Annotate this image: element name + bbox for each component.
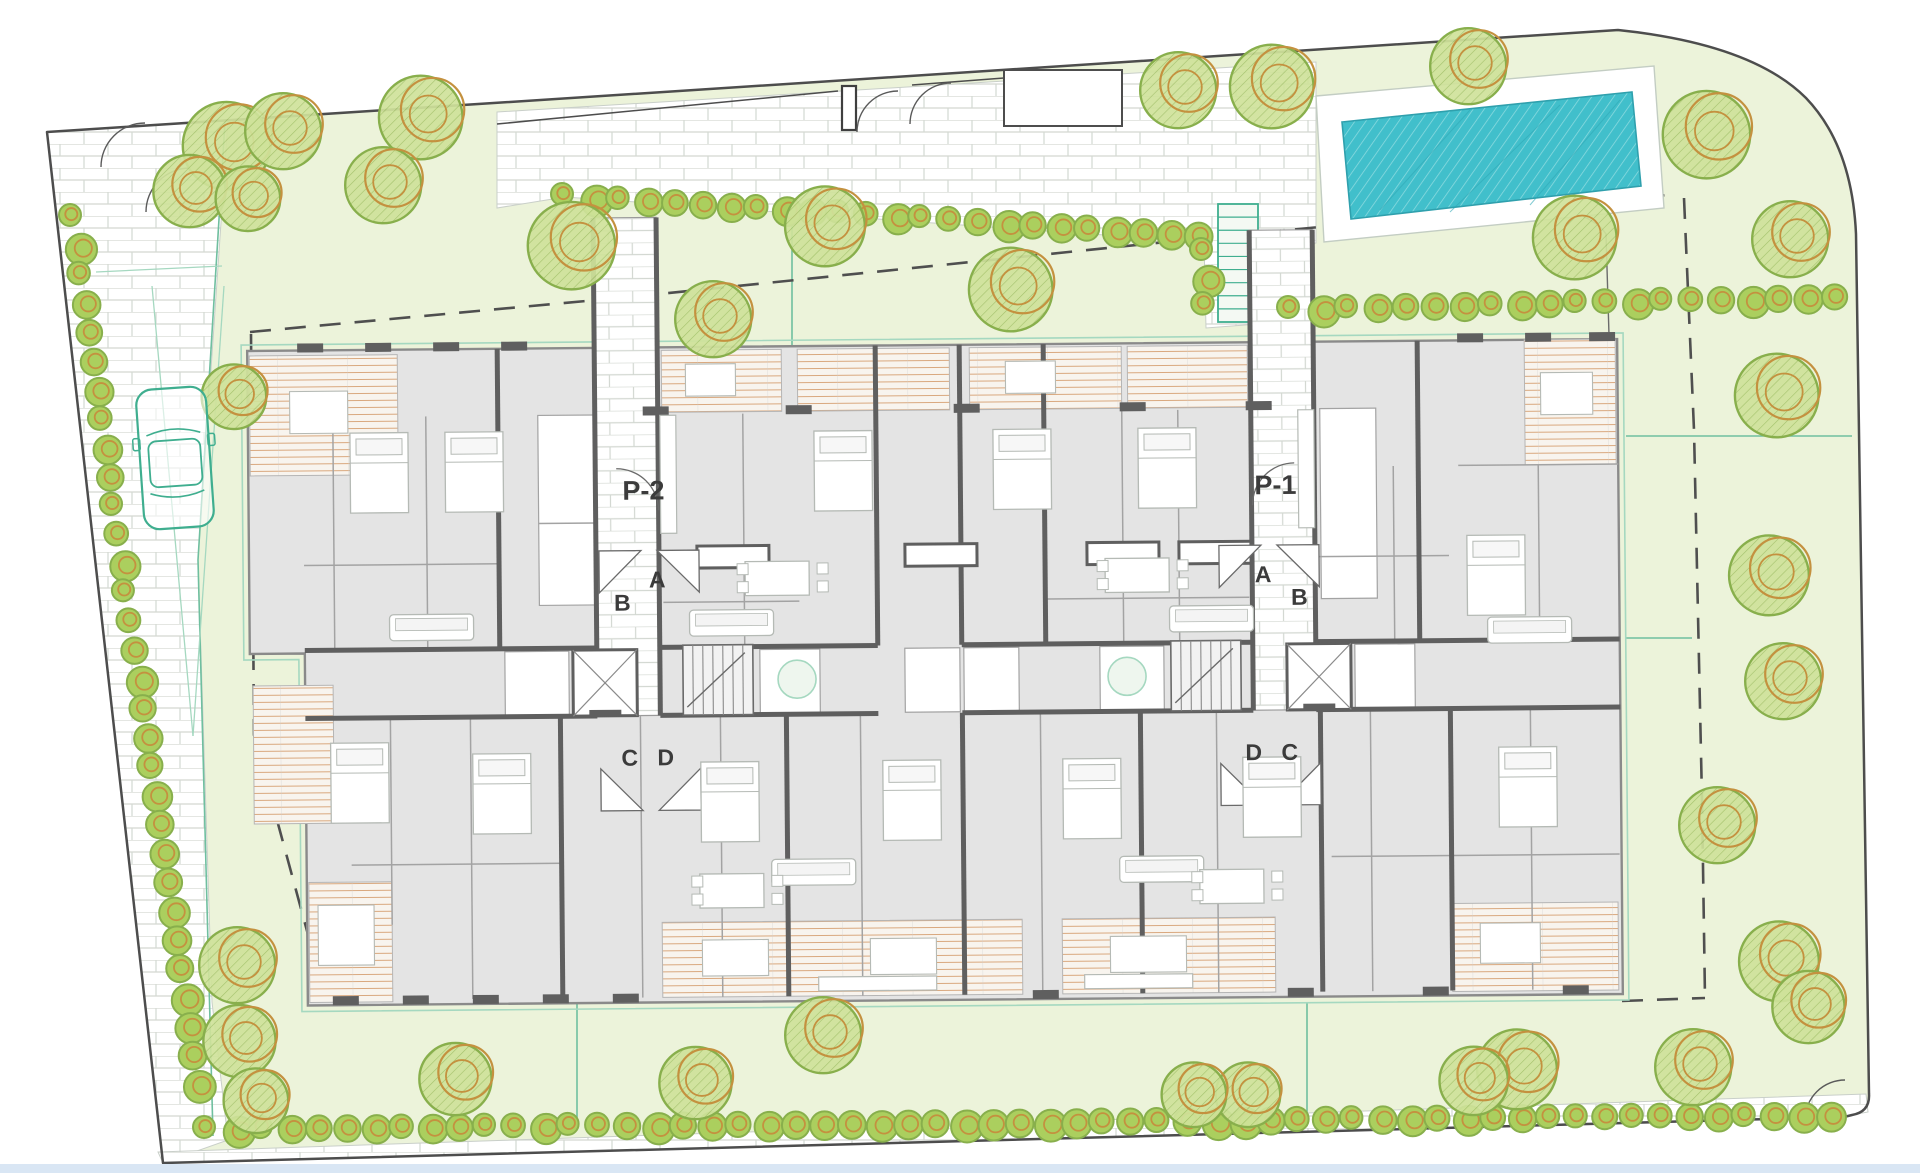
wall-pier (1423, 987, 1449, 996)
hedge-bush-icon (810, 1111, 839, 1140)
hedge-bush-icon (419, 1115, 448, 1144)
hedge-bush-icon (1705, 1104, 1733, 1132)
bed-line (1467, 565, 1525, 566)
tree-icon (1162, 1062, 1228, 1127)
tree-icon (1735, 354, 1820, 438)
wall-pier (613, 994, 639, 1003)
outdoor-furniture (685, 364, 735, 396)
tree-icon (1663, 91, 1752, 178)
tree-canopy (1663, 91, 1750, 178)
bed-line (445, 462, 503, 463)
tree-canopy (199, 927, 275, 1003)
tree-canopy (203, 1005, 275, 1077)
wall-pier (333, 996, 359, 1005)
tree-icon (1533, 196, 1618, 280)
outdoor-furniture (1005, 361, 1055, 393)
wall-pier (1525, 333, 1551, 342)
tree-icon (224, 1068, 290, 1133)
hedge-bush-icon (1365, 295, 1393, 323)
sofa-seat (1175, 609, 1247, 622)
hedge-bush-icon (1478, 292, 1502, 316)
wall-pier (1120, 402, 1146, 411)
tree-canopy (1430, 28, 1506, 104)
tree-icon (1439, 1047, 1509, 1115)
hedge-bush-icon (127, 667, 158, 698)
hedge-bush-icon (1398, 1106, 1428, 1136)
hedge-bush-icon (744, 195, 768, 219)
bathroom-room (538, 415, 596, 605)
chair (1272, 871, 1283, 882)
chair (1097, 560, 1108, 571)
tree-icon (659, 1047, 733, 1119)
label-c-left: C (621, 745, 638, 771)
car-icon (129, 385, 221, 530)
bed-pillow (1249, 763, 1295, 779)
hedge-bush-icon (159, 898, 190, 929)
hedge-bush-icon (1103, 218, 1133, 248)
hedge-bush-icon (446, 1114, 473, 1141)
hedge-bush-icon (1424, 1106, 1449, 1131)
annotation-layer (0, 1164, 1920, 1173)
hedge-bush-icon (166, 955, 193, 982)
hedge-bush-icon (134, 724, 162, 752)
round-fixture (778, 660, 816, 698)
tree-canopy (1745, 643, 1821, 719)
hedge-bush-icon (100, 493, 122, 515)
tree-icon (203, 1005, 277, 1077)
hedge-bush-icon (1158, 221, 1187, 250)
hedge-bush-icon (1708, 287, 1734, 313)
chair (692, 876, 703, 887)
bed-pillow (889, 766, 935, 782)
bed (1243, 757, 1302, 838)
hedge-bush-icon (1006, 1110, 1034, 1138)
kitchen-counter (660, 415, 677, 533)
kitchen-counter (1298, 410, 1315, 528)
outdoor-furniture (318, 905, 375, 965)
wall-pier (1246, 401, 1272, 410)
hedge-bush-icon (193, 1116, 215, 1138)
hedge-bush-icon (143, 782, 173, 812)
outdoor-furniture (1480, 923, 1540, 964)
bed-line (1243, 787, 1301, 788)
table-top (1200, 869, 1264, 904)
chair (817, 563, 828, 574)
bed (331, 743, 390, 824)
label-b-left: B (614, 590, 631, 616)
bathroom-room (1320, 408, 1378, 598)
wall-pier (643, 406, 669, 415)
chair (1192, 872, 1203, 883)
bed-line (1063, 788, 1121, 789)
hedge-bush-icon (150, 840, 179, 869)
tree-canopy (1140, 52, 1216, 128)
bed (473, 754, 532, 835)
hedge-bush-icon (1191, 292, 1214, 315)
hedge-bush-icon (867, 1111, 898, 1142)
sofa-seat (778, 863, 850, 876)
bathroom-room (964, 647, 1020, 711)
hedge-bush-icon (501, 1114, 525, 1138)
stair-tread (723, 645, 724, 715)
tree-icon (969, 248, 1054, 332)
tree-canopy (1735, 354, 1819, 438)
stair-core (1171, 640, 1242, 711)
tree-icon (1430, 28, 1508, 104)
wall-pier (365, 343, 391, 352)
label-d-right: D (1245, 739, 1262, 765)
bed-line (1138, 458, 1196, 459)
label-c-right: C (1281, 739, 1298, 765)
window-closet-block (905, 544, 977, 567)
hedge-bush-icon (104, 522, 128, 546)
hedge-bush-icon (1536, 291, 1563, 318)
hedge-bush-icon (184, 1071, 216, 1103)
hedge-bush-icon (1130, 219, 1158, 247)
hedge-bush-icon (1731, 1103, 1754, 1126)
hedge-bush-icon (1794, 285, 1822, 313)
bed (350, 433, 409, 514)
hedge-bush-icon (1563, 290, 1585, 312)
kitchen-counter (1085, 974, 1193, 989)
hedge-bush-icon (121, 637, 147, 663)
hedge-bush-icon (936, 207, 960, 231)
hedge-bush-icon (306, 1115, 332, 1141)
sofa (689, 609, 773, 636)
hedge-bush-icon (363, 1115, 391, 1143)
round-fixture (1108, 657, 1146, 695)
bed-line (701, 792, 759, 793)
tree-icon (1772, 971, 1846, 1043)
car-layer (129, 385, 221, 530)
wall-pier (1288, 988, 1314, 997)
stair-tread (693, 645, 694, 715)
hedge-bush-icon (66, 234, 97, 265)
hedge-bush-icon (838, 1111, 866, 1139)
tree-canopy (1439, 1047, 1507, 1115)
tree-canopy (345, 147, 421, 223)
bed-line (993, 459, 1051, 460)
chair (692, 894, 703, 905)
bed-pillow (999, 435, 1045, 451)
tree-canopy (1533, 196, 1617, 280)
site-plan-drawing: P-2P-1ABCDABCD (0, 0, 1920, 1173)
structural-wall (305, 648, 597, 651)
hedge-bush-icon (606, 186, 629, 209)
tree-canopy (202, 364, 267, 429)
hedge-bush-icon (894, 1111, 923, 1140)
chair (737, 582, 748, 593)
hedge-bush-icon (116, 608, 140, 632)
hedge-bush-icon (137, 753, 162, 778)
hedge-bush-icon (67, 262, 90, 285)
label-p1: P-1 (1254, 470, 1296, 500)
hedge-bush-icon (97, 464, 124, 491)
tree-icon (675, 281, 753, 357)
structural-wall (786, 714, 788, 996)
hedge-bush-icon (922, 1110, 949, 1137)
hedge-bush-icon (979, 1110, 1009, 1140)
hedge-bush-icon (635, 189, 663, 217)
hedge-bush-icon (1284, 1107, 1308, 1131)
tree-icon (1729, 535, 1810, 615)
hedge-bush-icon (718, 194, 746, 222)
scan-edge-band (0, 1164, 1920, 1173)
tree-canopy (153, 155, 225, 227)
tree-canopy (1162, 1062, 1227, 1127)
tree-canopy (216, 166, 281, 231)
tree-icon (419, 1043, 493, 1115)
hedge-bush-icon (1508, 292, 1537, 321)
hedge-bush-icon (1648, 1104, 1672, 1128)
elevator (573, 650, 638, 718)
tree-icon (785, 186, 866, 266)
hedge-bush-icon (908, 205, 930, 227)
tree-canopy (659, 1047, 731, 1119)
hedge-bush-icon (88, 406, 112, 430)
hedge-bush-icon (1678, 287, 1702, 311)
chair (1192, 890, 1203, 901)
tree-icon (202, 364, 268, 429)
sofa-seat (396, 618, 468, 631)
table-top (700, 874, 764, 909)
boundary-niche (1004, 70, 1122, 126)
hedge-bush-icon (1789, 1103, 1819, 1133)
bed-pillow (479, 760, 525, 776)
stair-tread (703, 645, 704, 715)
tree-icon (785, 997, 863, 1073)
hedge-bush-icon (1422, 293, 1449, 320)
hedge-bush-icon (85, 378, 113, 406)
hedge-bush-icon (964, 209, 990, 235)
hedge-bush-icon (725, 1112, 750, 1137)
hedge-bush-icon (1340, 1106, 1363, 1129)
hedge-bush-icon (81, 349, 108, 376)
terrace-deck (253, 685, 334, 824)
hedge-bush-icon (1761, 1103, 1788, 1130)
tree-canopy (785, 997, 861, 1073)
bathroom-room (505, 651, 570, 716)
elevator-door (1303, 704, 1335, 711)
chair (817, 581, 828, 592)
tree-canopy (785, 186, 865, 266)
stair-tread (1201, 641, 1202, 711)
chair (1177, 560, 1188, 571)
label-p2: P-2 (622, 475, 664, 505)
outdoor-furniture (702, 939, 768, 976)
hedge-bush-icon (1074, 216, 1099, 241)
hedge-bush-icon (614, 1113, 640, 1139)
tree-icon (1140, 52, 1218, 128)
hedge-bush-icon (1817, 1103, 1846, 1132)
bed-line (473, 784, 531, 785)
sofa-seat (1494, 620, 1566, 633)
tree-canopy (675, 281, 751, 357)
wall-pier (543, 994, 569, 1003)
bed-pillow (337, 749, 383, 765)
sofa (1488, 616, 1572, 643)
outdoor-furniture (290, 391, 348, 434)
sofa-seat (695, 613, 767, 626)
hedge-bush-icon (73, 291, 101, 319)
sofa (1169, 605, 1253, 632)
bed-line (814, 461, 872, 462)
hedge-bush-icon (1822, 284, 1847, 309)
tree-canopy (1679, 787, 1755, 863)
structural-wall (962, 713, 964, 995)
hedge-bush-icon (782, 1111, 810, 1139)
hedge-bush-icon (1564, 1104, 1587, 1127)
stair-core (683, 645, 754, 716)
tree-canopy (1729, 535, 1809, 615)
entry-corridor (593, 217, 660, 716)
bed (883, 760, 942, 841)
stair-tread (1191, 641, 1192, 711)
bed-pillow (451, 438, 497, 454)
bed-pillow (820, 437, 866, 453)
hedge-bush-icon (662, 190, 688, 216)
structural-wall (875, 346, 878, 646)
hedge-bush-icon (1313, 1107, 1339, 1133)
site-plan-canvas: P-2P-1ABCDABCD (0, 0, 1920, 1173)
tree-icon (216, 166, 282, 231)
hedge-bush-icon (110, 551, 140, 581)
hedge-bush-icon (389, 1114, 413, 1138)
structural-wall (1316, 639, 1620, 642)
bed-line (350, 463, 408, 464)
tree-canopy (419, 1043, 491, 1115)
hedge-bush-icon (1117, 1108, 1143, 1134)
bed (1138, 428, 1197, 509)
hedge-bush-icon (163, 926, 192, 955)
wall-pier (1457, 333, 1483, 342)
wall-pier (403, 995, 429, 1004)
tree-icon (199, 927, 277, 1003)
hedge-bush-icon (557, 1113, 579, 1135)
hedge-bush-icon (129, 695, 155, 721)
structural-wall (1320, 710, 1322, 992)
hedge-bush-icon (1649, 288, 1671, 310)
bed-pillow (1473, 541, 1519, 557)
stair-tread (713, 645, 714, 715)
structural-wall (1450, 709, 1452, 991)
hedge-bush-icon (1623, 289, 1653, 319)
tree-icon (345, 147, 423, 223)
hedge-bush-icon (1738, 287, 1769, 318)
hedge-bush-icon (1393, 294, 1419, 320)
bed (814, 431, 873, 512)
table-top (1105, 558, 1169, 593)
wall-pier (786, 405, 812, 414)
tree-canopy (1772, 971, 1844, 1043)
hedge-bush-icon (1019, 212, 1045, 238)
tree-canopy (969, 248, 1053, 332)
hedge-bush-icon (1089, 1109, 1114, 1134)
hedge-bush-icon (1048, 214, 1076, 242)
kitchen-counter (819, 976, 937, 991)
structural-wall (1417, 341, 1420, 641)
sofa (389, 614, 473, 641)
sofa (1120, 856, 1204, 883)
bed (445, 432, 504, 513)
bed (701, 762, 760, 843)
hedge-bush-icon (1592, 1104, 1617, 1129)
stair-tread (1211, 641, 1212, 711)
table-top (745, 561, 809, 596)
outdoor-furniture (1110, 936, 1186, 973)
label-d-left: D (657, 744, 674, 770)
structural-wall (959, 345, 962, 645)
tree-icon (1752, 201, 1830, 277)
hedge-bush-icon (179, 1042, 207, 1070)
hedge-bush-icon (473, 1114, 495, 1136)
hedge-bush-icon (1620, 1104, 1643, 1127)
tree-icon (379, 76, 464, 160)
wall-pier (473, 995, 499, 1004)
hedge-bush-icon (146, 811, 174, 839)
bed-pillow (1144, 434, 1190, 450)
hedge-bush-icon (76, 320, 102, 346)
bed (993, 429, 1052, 510)
hedge-bush-icon (175, 1013, 205, 1043)
tree-icon (1230, 45, 1315, 129)
car-body (135, 386, 215, 531)
wall-pier (501, 342, 527, 351)
outdoor-furniture (870, 938, 936, 975)
chair (1097, 578, 1108, 589)
hedge-bush-icon (1765, 286, 1791, 312)
bathroom-room (1355, 644, 1416, 709)
wall-pier (1589, 332, 1615, 341)
hedge-bush-icon (1677, 1104, 1703, 1130)
bed-line (1499, 777, 1557, 778)
hedge-bush-icon (59, 204, 81, 226)
bathroom-room (905, 648, 961, 712)
hedge-bush-icon (1144, 1108, 1168, 1132)
bed-line (883, 790, 941, 791)
hedge-bush-icon (585, 1113, 609, 1137)
hedge-bush-icon (1536, 1105, 1559, 1128)
tree-icon (1655, 1029, 1733, 1105)
outdoor-furniture (1540, 372, 1592, 414)
hedge-bush-icon (1277, 296, 1299, 318)
tree-canopy (528, 202, 615, 289)
elevator-door (589, 710, 621, 717)
hedge-bush-icon (1190, 238, 1212, 260)
tree-icon (528, 202, 617, 289)
structural-wall (560, 716, 562, 998)
tree-icon (1679, 787, 1757, 863)
elevator (1287, 643, 1352, 711)
bed (1063, 758, 1122, 839)
tree-canopy (1655, 1029, 1731, 1105)
wall-pier (954, 404, 980, 413)
label-a-left: A (649, 566, 666, 592)
structural-wall (305, 716, 597, 719)
sofa-seat (1126, 860, 1198, 873)
hedge-bush-icon (1369, 1106, 1396, 1133)
bed-pillow (1505, 753, 1551, 769)
hedge-bush-icon (1592, 289, 1616, 313)
sofa (772, 859, 856, 886)
chair (1272, 889, 1283, 900)
chair (772, 875, 783, 886)
tree-canopy (224, 1068, 289, 1133)
bed-line (331, 773, 389, 774)
hedge-bush-icon (1062, 1109, 1091, 1138)
hedge-bush-icon (154, 869, 182, 897)
chair (737, 564, 748, 575)
